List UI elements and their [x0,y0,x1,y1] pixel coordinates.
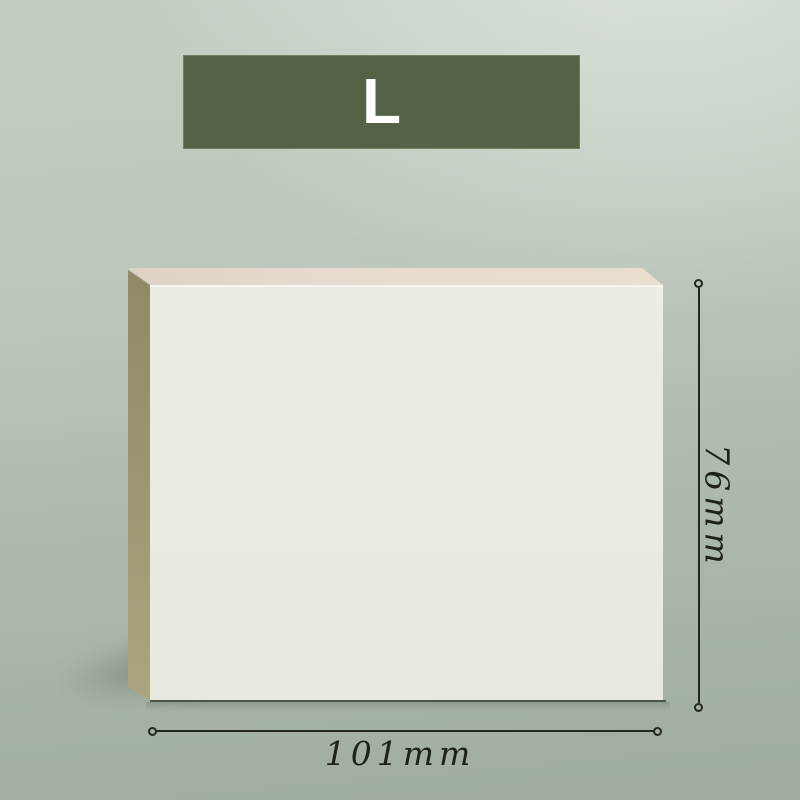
pad-left-face [128,270,150,700]
pad-front-face [150,285,663,700]
pad-contact-shadow-fade [146,702,670,711]
width-dimension-line [156,730,654,732]
product-size-image: L 101mm 76mm [0,0,800,800]
height-dimension-label: 76mm [701,437,734,577]
size-banner: L [183,55,580,149]
dimension-endpoint-dot [694,279,703,288]
width-dimension-label: 101mm [300,737,500,770]
dimension-endpoint-dot [653,727,662,736]
dimension-endpoint-dot [694,703,703,712]
dimension-endpoint-dot [148,727,157,736]
size-label: L [362,69,401,133]
pad-top-edge-highlight [150,285,663,287]
pad-top-face [128,268,663,285]
